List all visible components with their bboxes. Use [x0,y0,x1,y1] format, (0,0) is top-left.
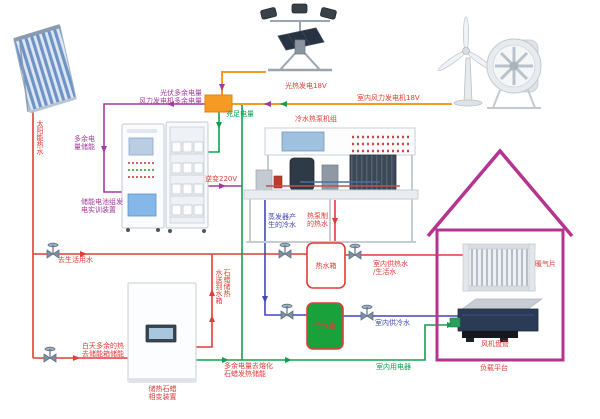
arrow-right-icon [285,357,292,363]
label-surplus-melt: 多余电量去熔化 石蜡发热储能 [224,362,273,378]
label-heat-pump-unit: 冷水热泵机组 [295,115,337,123]
pv-panel-stand-icon [260,4,337,70]
control-cabinet-icon [122,124,164,232]
arrow-down-icon [332,218,338,225]
hot-water-tank-label-box: 热水箱 [307,243,345,288]
label-evaporator-cold: 蒸发器产 生的冷水 [268,213,296,229]
label-load-platform: 负载平台 [480,364,508,372]
arrow-down-icon [101,146,107,153]
arrow-left-icon [280,101,287,107]
label-to-domestic-water: 去生活用水 [58,256,93,264]
label-heat-pump-hot: 热泵制 的热水 [307,212,328,228]
charge-battery-line [208,112,219,152]
label-pv-surplus: 光伏多余电量 [140,89,202,97]
label-indoor-appliances: 室内用电器 [376,363,411,371]
label-wind-output: 室内风力发电机18V [357,94,420,102]
label-battery-device: 储能电池组发 电实训装置 [81,198,123,214]
valve-icon [281,304,293,319]
label-hot-tank: 热水箱 [316,262,337,270]
paraffin-storage-cabinet-icon [128,283,196,382]
label-radiator: 暖气片 [535,260,556,268]
fan-coil-unit-icon [450,299,542,342]
label-fan-coil: 风机盘管 [481,340,509,348]
label-solar-hot-water: 太阳能热水 [36,120,44,166]
arrow-down-icon [219,84,225,91]
battery-cabinet-icon [166,122,208,233]
arrow-right-icon [219,183,226,189]
label-sufficient-power: 充足电量 [226,110,254,118]
label-indoor-cold-supply: 室内供冷水 [375,319,410,327]
arrow-down-icon [262,296,268,303]
valve-icon [44,347,56,362]
cold-water-tank-label-box: 冷水箱 [307,303,343,349]
valve-icon [279,243,291,258]
label-indoor-hot-supply: 室内供热水 /生活水 [373,260,408,276]
radiator-icon [463,244,535,291]
valve-icon [361,305,373,320]
label-wind-surplus: 风力发电机多余电量 [133,97,202,105]
arrow-left-icon [264,101,271,107]
label-paraffin-device: 储热石蜡 相变装置 [140,385,185,401]
label-cold-tank: 冷水箱 [315,322,336,330]
wind-turbine-icon [437,17,496,106]
system-diagram: 太阳能热水 光伏多余电量 风力发电机多余电量 光热发电18V 室内风力发电机18… [0,0,600,419]
label-paraffin-to-tank: 石蜡储热 水送到水箱 [215,269,231,317]
solar-thermal-collector-icon [14,26,76,112]
label-surplus-storage: 多余电 量储能 [74,135,95,151]
wind-source-fan-icon [487,39,541,108]
label-inverter: 逆变220V [205,175,237,183]
valve-icon [349,244,361,259]
label-pv-output: 光热发电18V [285,82,327,90]
arrow-right-icon [73,355,80,361]
pv-generation-line [222,72,266,95]
arrow-down-icon [216,122,222,129]
label-daytime-surplus: 白天多余的热 去储能箱储能 [82,342,124,358]
paraffin-to-tank-line [196,254,212,347]
